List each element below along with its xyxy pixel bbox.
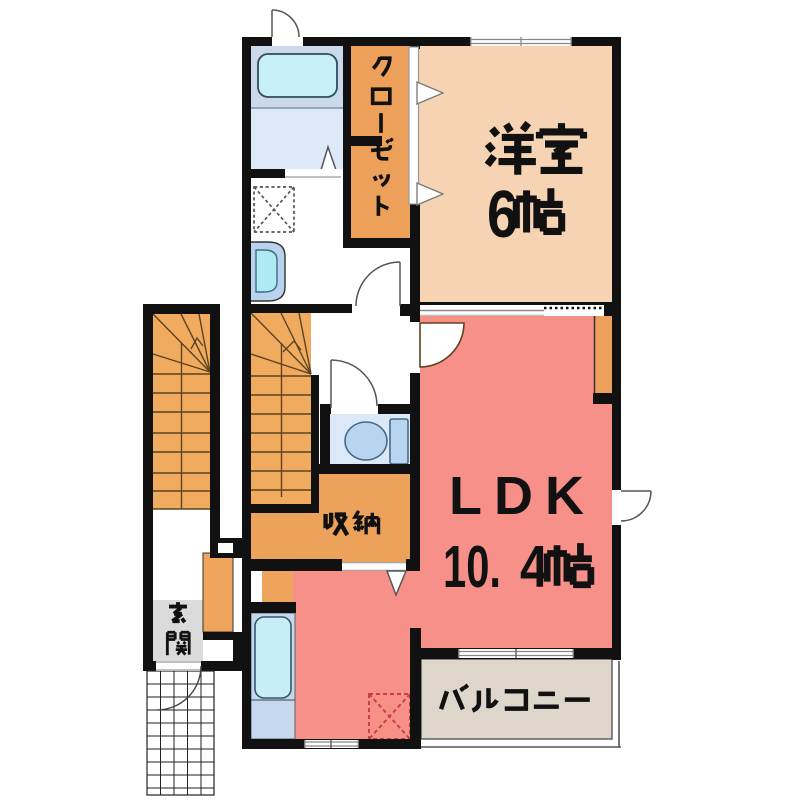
svg-text:10.: 10. <box>443 534 501 600</box>
svg-text:LDK: LDK <box>449 466 596 526</box>
